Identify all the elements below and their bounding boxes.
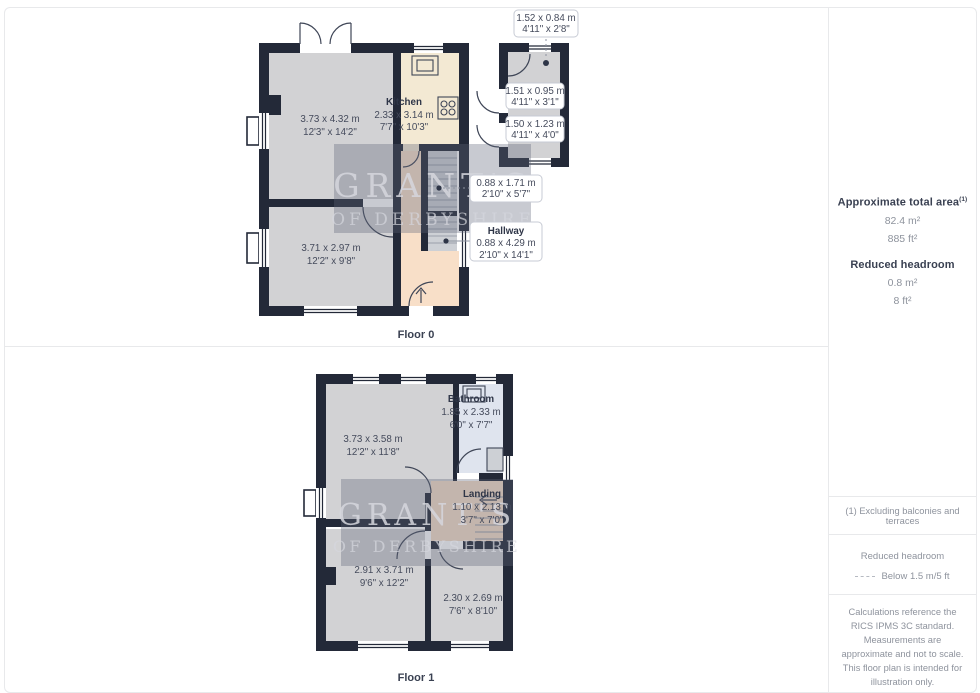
reception-dims-imperial: 12'2" x 9'8" [307,256,356,267]
bedroom3-dims-imperial: 7'6" x 8'10" [449,606,498,617]
kitchen-name: Kitchen [386,97,422,108]
svg-text:1.52 x 0.84 m: 1.52 x 0.84 m [516,13,575,24]
svg-text:1.51 x 0.95 m: 1.51 x 0.95 m [505,86,564,97]
bathroom-dims-metric: 1.85 x 2.33 m [441,407,500,418]
bedroom2-dims-imperial: 9'6" x 12'2" [360,578,409,589]
landing-dims-imperial: 3'7" x 7'0" [461,515,504,526]
entry-area [399,251,459,306]
reduced-headroom-title: Reduced headroom [829,259,976,271]
svg-text:Hallway: Hallway [488,226,525,237]
store3-label: 1.50 x 1.23 m 4'11" x 4'0" [505,116,564,142]
footnote-text: (1) Excluding balconies and terraces [829,506,976,526]
floorplan-card: GRANT'S OF DERBYSHIRE 3.73 x 4.32 m 12'3… [4,7,977,693]
floor-divider [5,346,828,347]
bathroom-name: Bathroom [448,394,495,405]
total-area-title: Approximate total area(1) [829,196,976,209]
total-area-title-text: Approximate total area [838,197,959,209]
floor1-label: Floor 1 [398,672,435,684]
store1-area [508,52,560,83]
living-dims-metric: 3.73 x 4.32 m [300,114,359,125]
total-area-footnote-ref: (1) [959,196,967,203]
watermark-line2: OF DERBYSHIRE [333,537,521,556]
total-area-metric: 82.4 m² [829,215,976,227]
svg-text:4'11" x 2'8": 4'11" x 2'8" [522,24,570,35]
svg-text:2'10" x 14'1": 2'10" x 14'1" [479,250,533,261]
floorplan-page: GRANT'S OF DERBYSHIRE 3.73 x 4.32 m 12'3… [0,0,980,693]
kitchen-dims-imperial: 7'7" x 10'3" [380,122,429,133]
svg-text:4'11" x 3'1": 4'11" x 3'1" [511,97,559,108]
footnote-section: (1) Excluding balconies and terraces [829,496,976,534]
svg-text:0.88 x 1.71 m: 0.88 x 1.71 m [476,178,535,189]
floor0-plan: GRANT'S OF DERBYSHIRE 3.73 x 4.32 m 12'3… [5,8,828,346]
svg-text:1.50 x 1.23 m: 1.50 x 1.23 m [505,119,564,130]
svg-text:2'10" x 5'7": 2'10" x 5'7" [482,189,531,200]
svg-text:4'11" x 4'0": 4'11" x 4'0" [511,130,559,141]
reduced-headroom-imperial: 8 ft² [829,295,976,307]
total-area-imperial: 885 ft² [829,233,976,245]
legend-section: Reduced headroom Below 1.5 m/5 ft [829,534,976,594]
floor1-plan: GRANT'S OF DERBYSHIRE 3.73 x 3.58 m 12'2… [5,347,828,692]
bathroom-dims-imperial: 6'0" x 7'7" [450,420,493,431]
floor0-label: Floor 0 [398,329,435,341]
store1-label: 1.52 x 0.84 m 4'11" x 2'8" [514,10,578,37]
landing-name: Landing [463,489,501,500]
legend-item-text: Below 1.5 m/5 ft [881,571,949,582]
area-summary-section: Approximate total area(1) 82.4 m² 885 ft… [829,8,976,496]
bedroom1-area [326,384,453,481]
store2-label: 1.51 x 0.95 m 4'11" x 3'1" [505,83,564,109]
bedroom1-dims-imperial: 12'2" x 11'8" [346,447,400,458]
bedroom2-dims-metric: 2.91 x 3.71 m [354,565,413,576]
bedroom3-dims-metric: 2.30 x 2.69 m [443,593,502,604]
summary-sidebar: Approximate total area(1) 82.4 m² 885 ft… [829,8,976,692]
disclaimer-section: Calculations reference the RICS IPMS 3C … [829,594,976,692]
disclaimer-text: Calculations reference the RICS IPMS 3C … [839,606,967,690]
legend-title: Reduced headroom [829,551,976,562]
svg-text:0.88 x 4.29 m: 0.88 x 4.29 m [476,238,535,249]
reception-dims-metric: 3.71 x 2.97 m [301,243,360,254]
reduced-headroom-metric: 0.8 m² [829,277,976,289]
living-dims-imperial: 12'3" x 14'2" [303,127,357,138]
legend-row: Below 1.5 m/5 ft [829,571,976,582]
dashed-line-icon [855,576,875,577]
bedroom1-dims-metric: 3.73 x 3.58 m [343,434,402,445]
kitchen-dims-metric: 2.33 x 3.14 m [374,110,433,121]
landing-dims-metric: 1.10 x 2.13 m [452,502,511,513]
